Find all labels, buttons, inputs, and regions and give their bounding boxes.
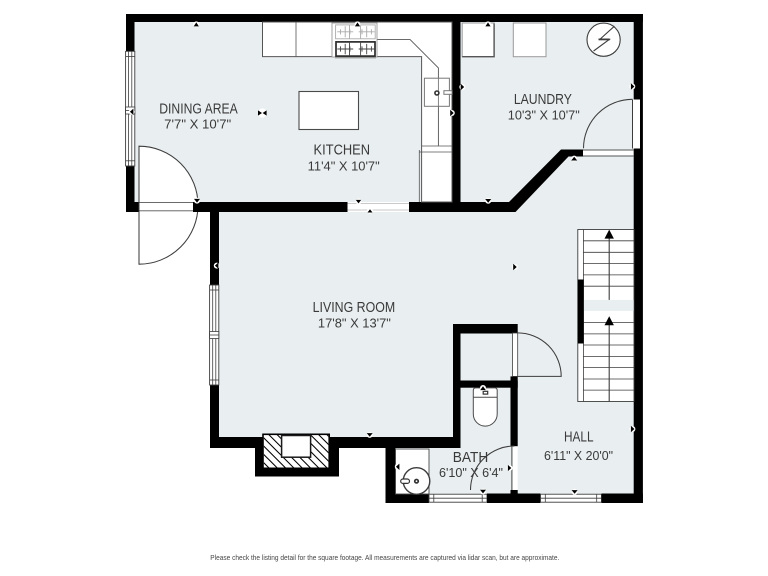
svg-text:LIVING ROOM: LIVING ROOM	[313, 300, 396, 316]
svg-text:6'11" X 20'0": 6'11" X 20'0"	[544, 449, 613, 463]
svg-text:10'3" X 10'7": 10'3" X 10'7"	[508, 109, 580, 123]
svg-text:7'7" X 10'7": 7'7" X 10'7"	[164, 117, 231, 131]
svg-text:DINING AREA: DINING AREA	[159, 101, 238, 117]
svg-text:KITCHEN: KITCHEN	[314, 142, 371, 158]
svg-text:6'10" X 6'4": 6'10" X 6'4"	[439, 466, 503, 480]
svg-text:11'4" X 10'7": 11'4" X 10'7"	[308, 160, 380, 174]
svg-text:LAUNDRY: LAUNDRY	[514, 92, 572, 108]
svg-text:HALL: HALL	[564, 429, 594, 445]
svg-text:BATH: BATH	[453, 450, 489, 466]
svg-text:17'8" X 13'7": 17'8" X 13'7"	[318, 316, 391, 330]
svg-text:Please check the listing detai: Please check the listing detail for the …	[210, 553, 559, 562]
